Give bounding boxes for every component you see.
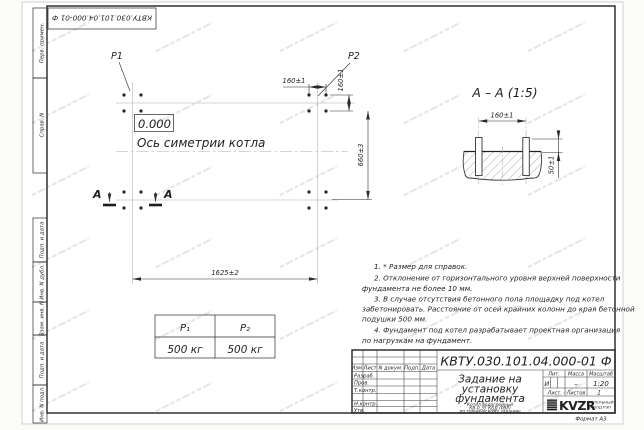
dim-section-protrusion: 50±1 xyxy=(548,156,556,175)
dim-section-bolt-spacing: 160±1 xyxy=(491,112,514,120)
dim-plan-height: 660±3 xyxy=(357,144,365,167)
section-letter-left: А xyxy=(92,188,102,201)
doc-subtitle-line3: по техническому заданию xyxy=(459,410,520,415)
margin-label-inv-podl: Инв. N подл. xyxy=(40,386,46,422)
margin-label-inv-dubl: Инв. N дубл. xyxy=(40,264,46,299)
load-point-label-p1: P1 xyxy=(111,51,123,62)
col-list: Лист xyxy=(362,366,377,372)
col-ndoc: N докум. xyxy=(378,366,402,372)
title-block-doc-number: КВТУ.030.101.04.000-01 Ф xyxy=(440,354,611,369)
note-line: 1. * Размер для справок. xyxy=(374,262,467,271)
load-table-header-p2: P₂ xyxy=(240,323,250,334)
margin-label-sprav-n: Справ. N xyxy=(40,113,46,138)
row-prov: Пров. xyxy=(354,381,369,387)
note-line: 3. В случае отсутствия бетонного пола пл… xyxy=(374,295,605,304)
massa-value: – xyxy=(574,380,578,388)
format-label: Формат А3 xyxy=(575,417,607,423)
masshtab-header: Масштаб xyxy=(589,372,613,378)
top-stamp-doc-number: КВТУ.030.101.04.000-01 Ф xyxy=(52,14,152,23)
load-table-value-p1: 500 кг xyxy=(167,344,203,356)
lit-value: И xyxy=(544,380,549,388)
note-line: по нагрузкам на фундамент. xyxy=(362,336,472,345)
section-title: А – А (1:5) xyxy=(471,85,537,100)
listov-value: 1 xyxy=(597,390,601,397)
margin-label-podp-data-1: Подп. и дата xyxy=(40,222,46,259)
row-tkontr: Т.контр. xyxy=(354,388,376,394)
section-letter-right: А xyxy=(163,188,173,201)
row-razrab: Разраб. xyxy=(354,374,374,380)
symmetry-axis-label: Ось симетрии котла xyxy=(137,136,265,150)
note-line: фундамента не более 10 мм. xyxy=(362,284,472,293)
load-point-label-p2: P2 xyxy=(348,51,360,62)
drawing-sheet: Перв. примен. Справ. N Подп. и дата Инв.… xyxy=(0,0,644,430)
masshtab-value: 1:20 xyxy=(593,380,609,388)
load-table-value-p2: 500 кг xyxy=(227,344,263,356)
row-nkontr: Н.контр. xyxy=(354,401,377,407)
col-podp: Подп. xyxy=(404,366,420,372)
margin-label-podp-data-2: Подп. и дата xyxy=(40,342,46,379)
listov-label: Листов xyxy=(566,390,586,396)
elevation-value: 0.000 xyxy=(138,117,171,131)
kvzr-logo-sub2: ЗАВОД РЭП xyxy=(588,405,611,410)
dim-bolt-horizontal: 160±1 xyxy=(283,77,306,85)
anchor-bolt-left xyxy=(476,138,483,176)
margin-label-perv-primen: Перв. примен. xyxy=(40,23,46,63)
note-line: подушки 500 мм. xyxy=(362,315,427,324)
margin-label-vzam-inv: Взам. инв. N xyxy=(40,301,46,336)
note-line: забетонировать. Расстояние от осей крайн… xyxy=(362,305,635,314)
col-data: Дата xyxy=(421,366,435,372)
note-line: 2. Отклонение от горизонтального уровня … xyxy=(374,274,621,283)
load-table-header-p1: P₁ xyxy=(180,323,190,334)
note-line: 4. Фундамент под котел разрабатывает про… xyxy=(374,326,621,335)
anchor-bolt-right xyxy=(523,138,530,176)
row-utv: Утв. xyxy=(354,408,365,414)
dim-bolt-vertical: 160±1 xyxy=(337,69,345,92)
col-izm: Изм. xyxy=(351,366,363,372)
lit-header: Лит. xyxy=(547,372,560,378)
list-label: Лист xyxy=(547,390,562,396)
massa-header: Масса xyxy=(568,372,584,378)
dim-plan-width: 1625±2 xyxy=(211,269,238,277)
